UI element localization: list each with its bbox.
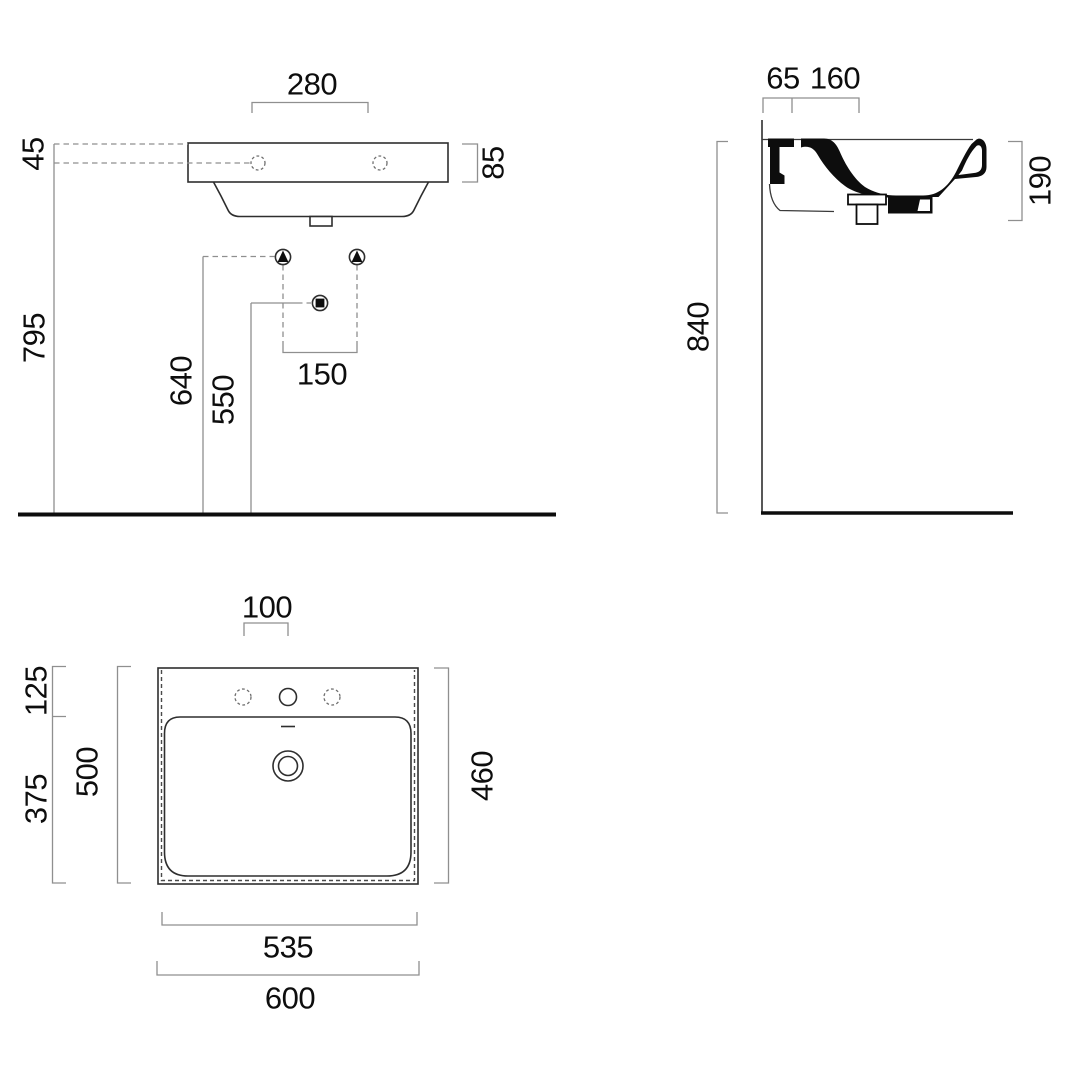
dim-label-840: 840 xyxy=(683,302,714,352)
dim-label-280: 280 xyxy=(287,69,337,100)
technical-drawing-canvas: 280 45 85 795 640 550 150 65 160 840 190… xyxy=(0,0,1080,1080)
dim-label-460: 460 xyxy=(467,751,498,801)
dim-label-550: 550 xyxy=(208,375,239,425)
wall-fixing-marker-right-icon xyxy=(349,249,364,264)
plan-bowl xyxy=(165,717,412,876)
dim-label-535: 535 xyxy=(263,932,313,963)
side-shell-outline xyxy=(770,184,835,212)
dim-bracket-190 xyxy=(1008,142,1022,221)
dim-label-640: 640 xyxy=(166,356,197,406)
side-drain-pipe xyxy=(857,205,878,225)
side-drain-flange xyxy=(848,195,886,205)
dim-label-125: 125 xyxy=(21,666,52,716)
dim-label-600: 600 xyxy=(265,983,315,1014)
dim-bracket-535 xyxy=(162,912,417,925)
dim-label-190: 190 xyxy=(1025,156,1056,206)
dim-label-795: 795 xyxy=(19,313,50,363)
dim-label-160: 160 xyxy=(810,63,860,94)
dim-label-150: 150 xyxy=(297,359,347,390)
dim-bracket-460 xyxy=(434,668,449,883)
dim-bracket-125-375 xyxy=(53,667,67,884)
dim-label-65: 65 xyxy=(766,63,799,94)
front-drain-stub xyxy=(310,217,332,227)
front-basin-bowl xyxy=(214,182,429,217)
dim-label-100: 100 xyxy=(242,592,292,623)
plan-view xyxy=(53,623,449,975)
side-section-wall-bracket xyxy=(768,139,794,185)
side-view xyxy=(717,98,1022,513)
dim-bracket-100 xyxy=(244,623,288,636)
side-section-basin-body xyxy=(801,139,987,214)
dim-bracket-500 xyxy=(118,667,132,884)
dim-bracket-840 xyxy=(717,142,728,514)
dim-label-85: 85 xyxy=(478,146,509,179)
drawing-linework xyxy=(0,0,1080,1080)
dim-label-500: 500 xyxy=(72,747,103,797)
wall-fixing-marker-left-icon xyxy=(275,249,290,264)
drain-outlet-marker-icon xyxy=(312,295,327,310)
dim-bracket-280 xyxy=(252,103,368,114)
dim-bracket-150 xyxy=(283,342,357,353)
dim-label-45: 45 xyxy=(18,137,49,170)
dim-label-375: 375 xyxy=(21,774,52,824)
dim-bracket-65-160 xyxy=(763,98,859,113)
